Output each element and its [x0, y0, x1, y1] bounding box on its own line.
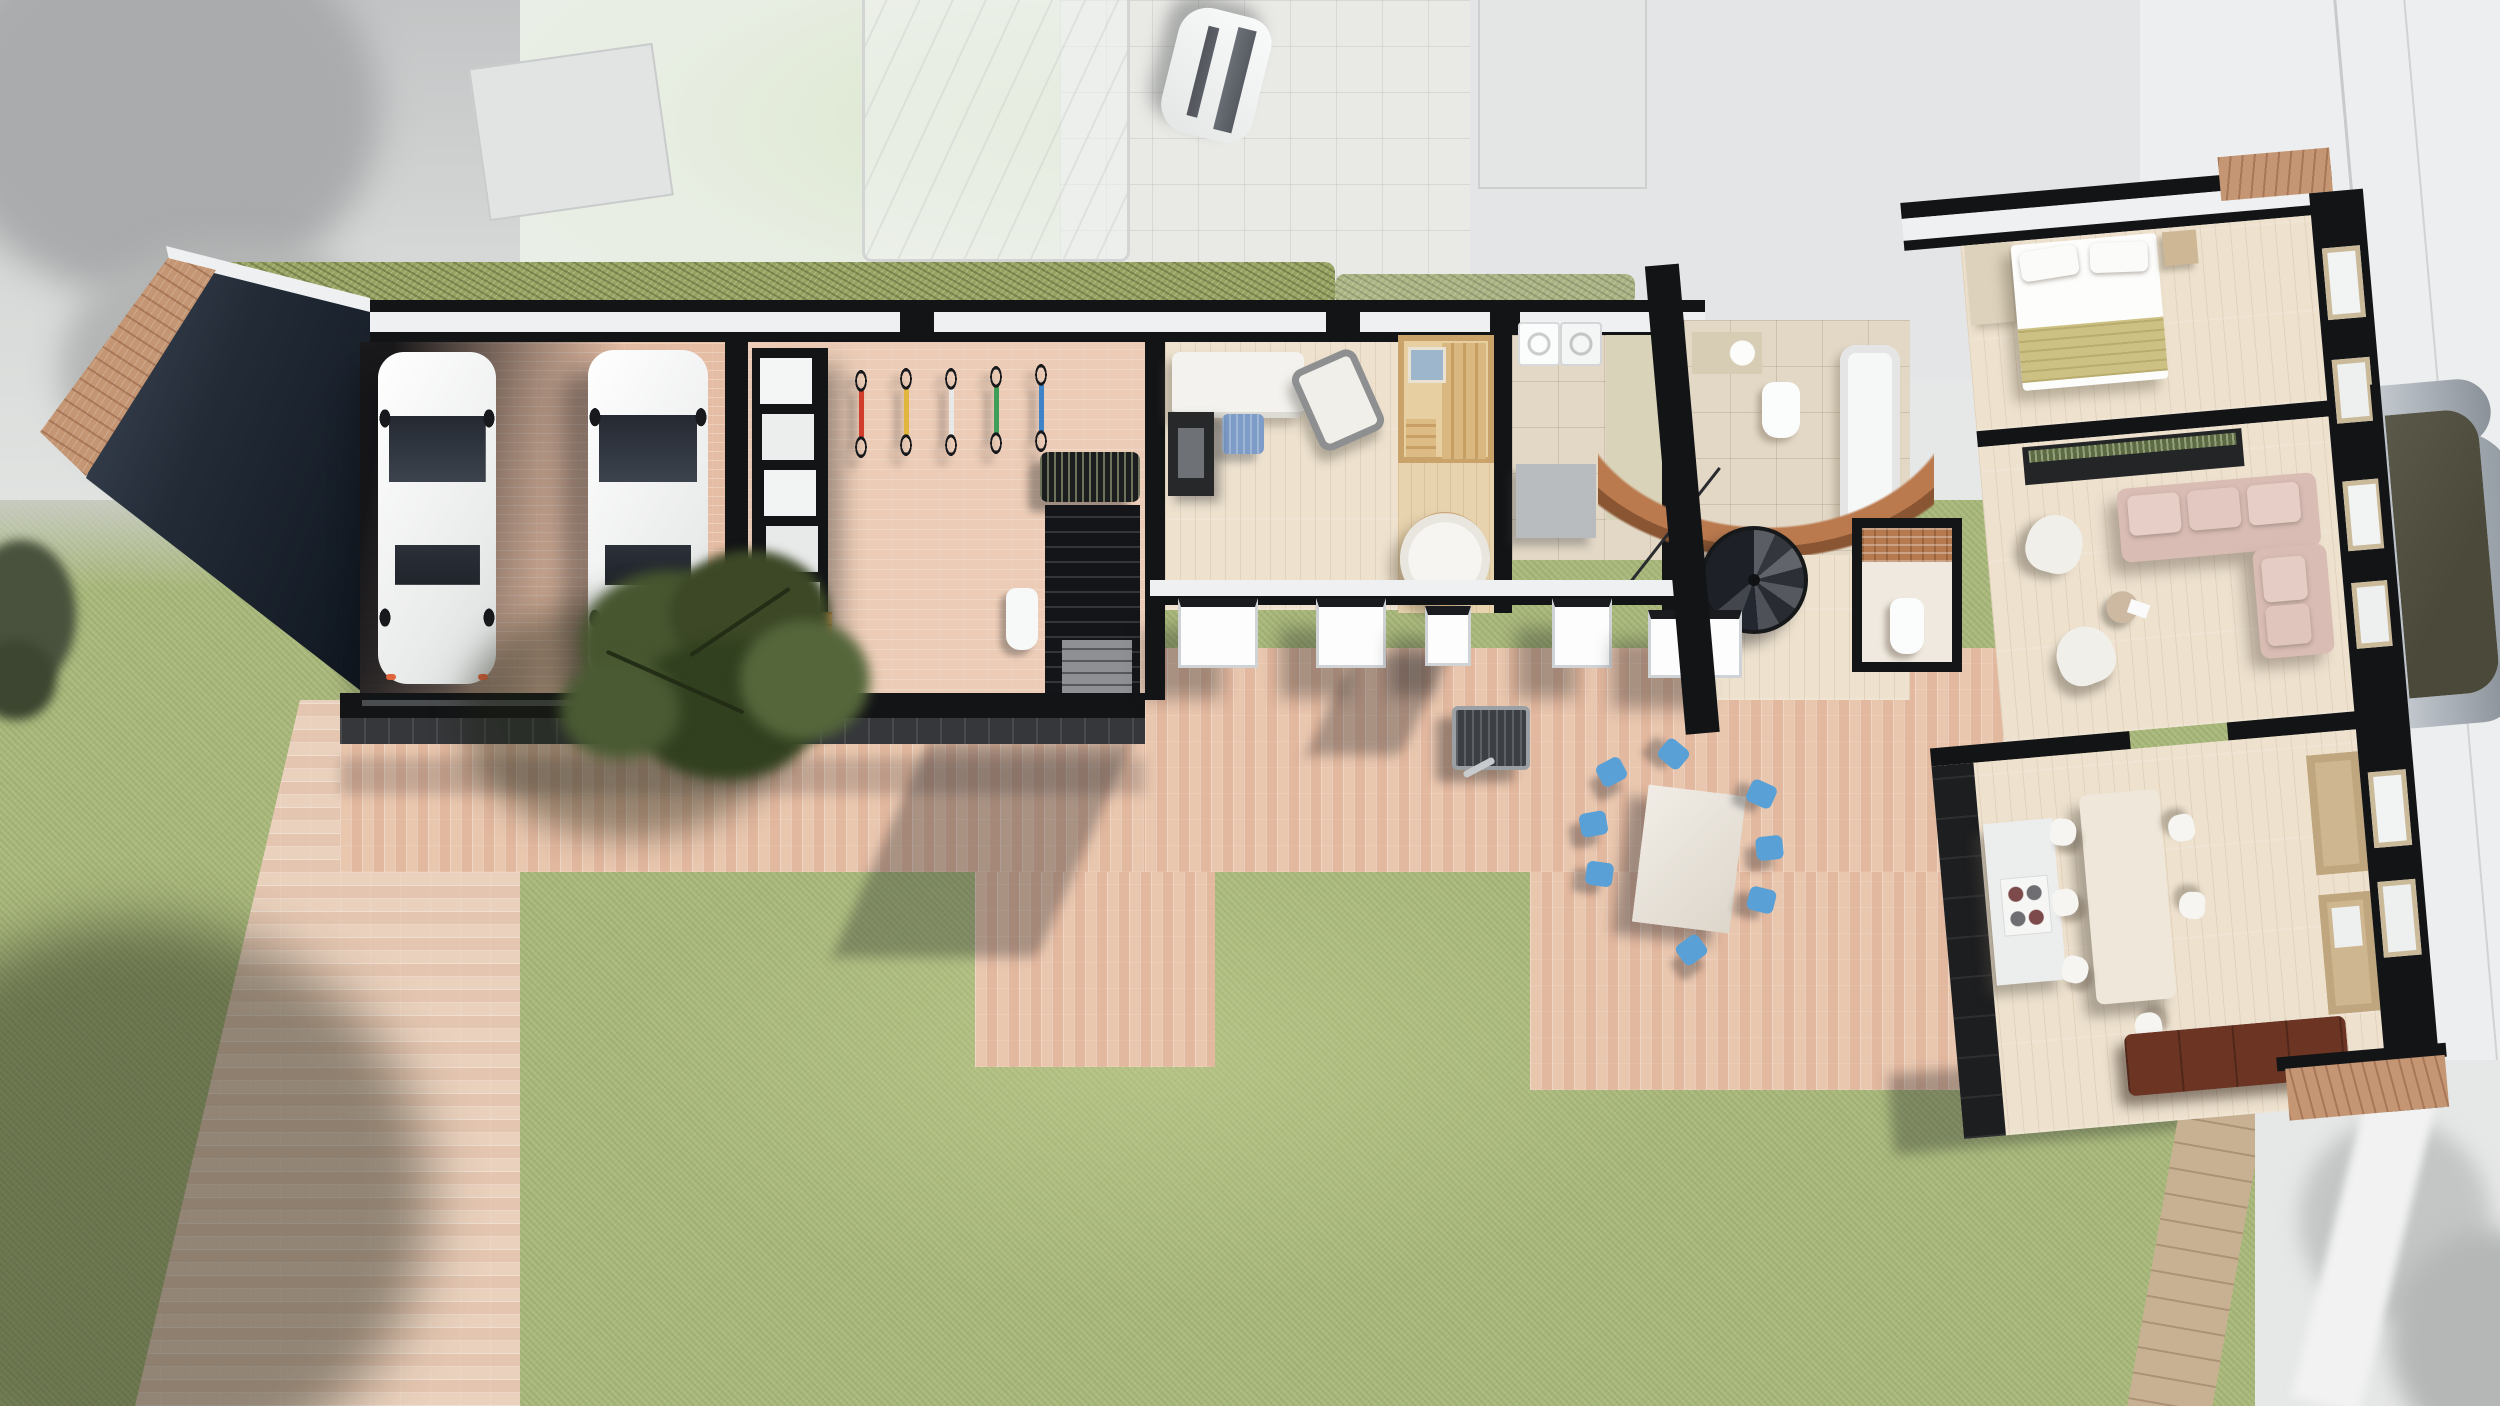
sofa-cushion [2246, 481, 2301, 525]
sauna-bucket [1408, 347, 1446, 383]
staircase-lit-treads [1062, 640, 1132, 698]
neighbor-shed [468, 43, 674, 221]
hob [2000, 875, 2053, 937]
grey-cabinet [1516, 464, 1596, 538]
tree-canopy [740, 620, 870, 740]
wall-pillar [900, 300, 934, 344]
gable-roof-plane [40, 240, 380, 710]
sauna [1398, 335, 1494, 463]
pillow [2018, 244, 2080, 283]
outdoor-chair [1578, 810, 1609, 838]
dining-chair [2178, 891, 2205, 919]
media-cabinet [1168, 412, 1214, 496]
cargo-bike [1040, 452, 1140, 502]
right-wing [1660, 138, 2500, 1216]
olive-throw [2018, 317, 2168, 384]
facade-window [2368, 769, 2412, 848]
lounge-pouf [1222, 414, 1264, 454]
sofa-cushion [2261, 555, 2309, 603]
wall-bike-lounge [1145, 342, 1165, 700]
neighbor-house [1478, 0, 1647, 189]
entrance-bay [2376, 375, 2500, 729]
window-box [1425, 606, 1471, 666]
window-box [1178, 598, 1258, 668]
shelf-bin [760, 358, 812, 404]
neighbor-greenhouse [862, 0, 1130, 262]
garage-gable-roof [40, 240, 380, 710]
bedside-table [2162, 229, 2199, 266]
bike-green [987, 364, 1005, 456]
floorplan-render [0, 0, 2500, 1406]
sauna-step-bench [1406, 419, 1436, 457]
shelf-bin [764, 470, 816, 516]
garage-car-1 [378, 352, 496, 684]
dryer [1560, 322, 1602, 366]
pillow [2089, 241, 2148, 273]
wardrobe [1964, 242, 2015, 326]
sofa-cushion [2265, 603, 2312, 647]
window-glass [2331, 906, 2362, 948]
bike-blue [1032, 362, 1050, 454]
lounge-sofa [1172, 352, 1304, 418]
shelf-bin [762, 414, 814, 460]
sauna-benches [1442, 343, 1486, 459]
car-wheels [378, 352, 496, 684]
car-taillight [386, 674, 396, 680]
window-box [1552, 598, 1612, 668]
facade-window [2322, 245, 2366, 320]
wall-pillar [1326, 300, 1360, 344]
wc-under-stairs [1006, 588, 1038, 650]
sofa-cushion [2127, 492, 2182, 536]
window-box [1316, 598, 1386, 668]
sofa-cushion [2187, 487, 2242, 531]
bike-red [852, 368, 870, 460]
facade-window [2332, 357, 2375, 424]
tv-screen [1178, 428, 1204, 478]
bike-white [942, 366, 960, 458]
wall-sauna-laundry [1494, 335, 1512, 613]
facade-window [2377, 879, 2421, 958]
blush-sofa-chaise [2252, 543, 2335, 659]
garden-tree [540, 530, 900, 810]
bike-yellow [897, 366, 915, 458]
outdoor-chair [1584, 860, 1614, 888]
washer [1518, 322, 1560, 366]
double-bed [2010, 233, 2168, 391]
